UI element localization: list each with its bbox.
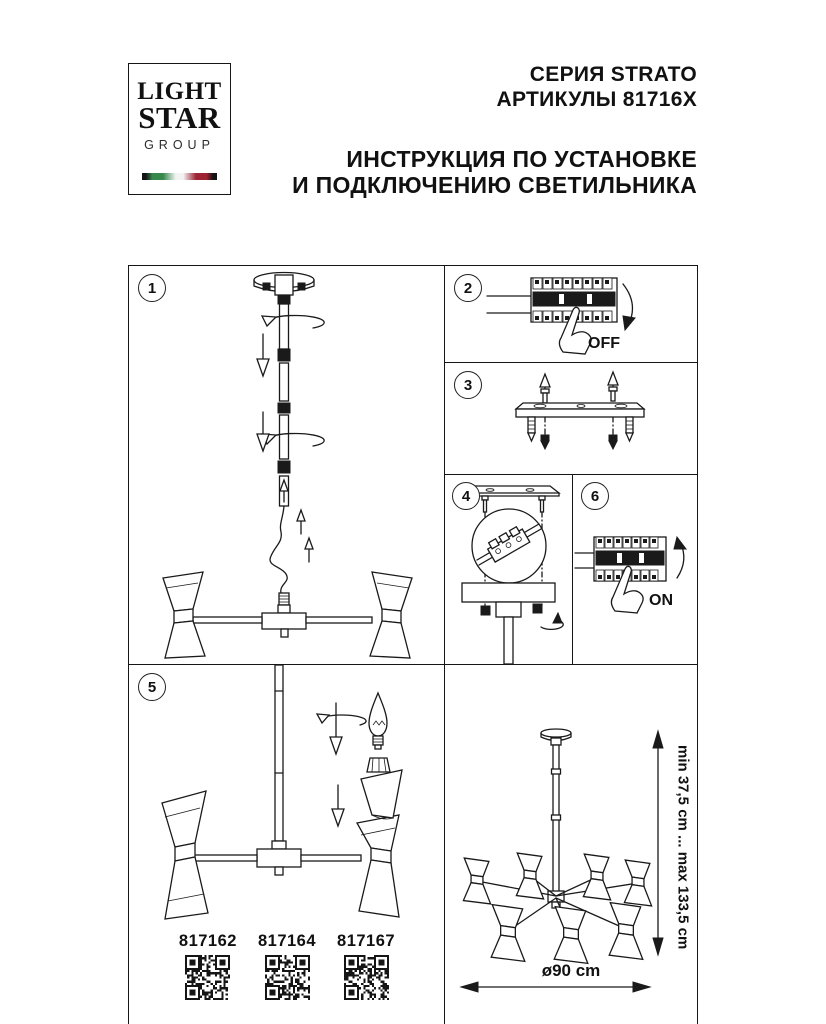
article-item: 817164 (258, 932, 316, 1000)
series-line: СЕРИЯ STRATO (497, 62, 697, 87)
article-number: 817164 (258, 932, 316, 951)
qr-code (265, 955, 310, 1000)
step3-panel: 3 (444, 362, 698, 476)
article-number: 817162 (179, 932, 237, 951)
breaker-off-drawing (445, 266, 696, 362)
diameter-label: ø90 cm (445, 961, 697, 981)
article-qr-list: 817162817164817167 (128, 932, 446, 1000)
step1-panel: 1 (128, 265, 446, 666)
article-item: 817162 (179, 932, 237, 1000)
bracket-drawing (445, 363, 696, 474)
step2-badge: 2 (454, 274, 482, 302)
instruction-title: ИНСТРУКЦИЯ ПО УСТАНОВКЕ И ПОДКЛЮЧЕНИЮ СВ… (292, 146, 697, 198)
series-title: СЕРИЯ STRATO АРТИКУЛЫ 81716X (497, 62, 697, 112)
step5-panel: 5 (128, 664, 446, 926)
shade-bulb-drawing (129, 665, 444, 924)
step6-panel: 6 (572, 474, 698, 666)
logo-word-group: GROUP (129, 138, 230, 152)
instruction-line-2: И ПОДКЛЮЧЕНИЮ СВЕТИЛЬНИКА (292, 172, 697, 198)
off-label: OFF (588, 335, 620, 353)
step4-badge: 4 (452, 482, 480, 510)
step2-panel: 2 (444, 265, 698, 364)
italian-flag-bar (142, 173, 217, 180)
qr-code (344, 955, 389, 1000)
step1-badge: 1 (138, 274, 166, 302)
rod-assembly-drawing (129, 266, 444, 664)
on-label: ON (649, 592, 673, 610)
instruction-sheet: LIGHT STAR GROUP СЕРИЯ STRATO АРТИКУЛЫ 8… (0, 0, 826, 1024)
articles-line: АРТИКУЛЫ 81716X (497, 87, 697, 112)
logo-word-star: STAR (129, 104, 230, 132)
height-range-label: min 37,5 cm ... max 133,5 cm (672, 737, 694, 957)
qr-code (185, 955, 230, 1000)
step6-badge: 6 (581, 482, 609, 510)
article-item: 817167 (337, 932, 395, 1000)
instruction-line-1: ИНСТРУКЦИЯ ПО УСТАНОВКЕ (292, 146, 697, 172)
step4-panel: 4 (444, 474, 574, 666)
lightstar-logo: LIGHT STAR GROUP (128, 63, 231, 195)
step3-badge: 3 (454, 371, 482, 399)
dimensions-panel: min 37,5 cm ... max 133,5 cm ø90 cm (444, 664, 698, 1024)
article-number: 817167 (337, 932, 395, 951)
step5-badge: 5 (138, 673, 166, 701)
